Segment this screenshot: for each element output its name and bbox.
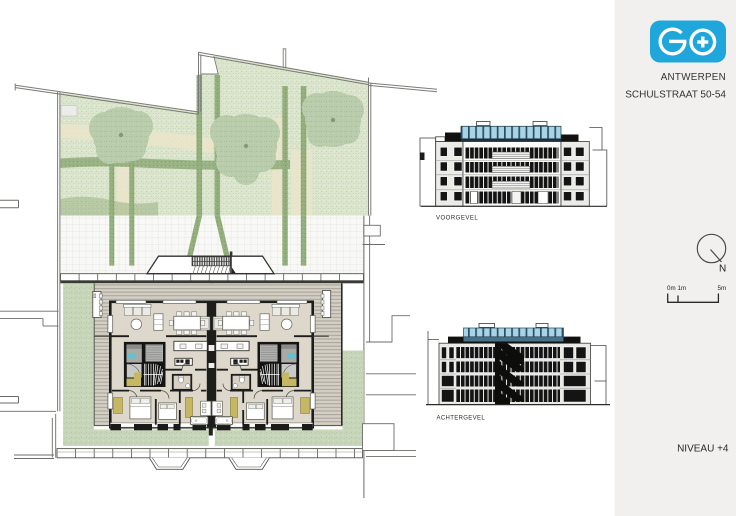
svg-text:5m: 5m xyxy=(718,285,727,292)
svg-text:N: N xyxy=(719,264,726,275)
svg-text:1m: 1m xyxy=(678,285,687,292)
svg-text:ANTWERPEN: ANTWERPEN xyxy=(661,72,726,83)
svg-text:SCHULSTRAAT 50-54: SCHULSTRAAT 50-54 xyxy=(625,90,726,101)
svg-text:ACHTERGEVEL: ACHTERGEVEL xyxy=(437,416,486,422)
svg-text:VOORGEVEL: VOORGEVEL xyxy=(436,215,478,221)
svg-text:NIVEAU +4: NIVEAU +4 xyxy=(677,444,729,455)
svg-text:0m: 0m xyxy=(667,285,676,292)
